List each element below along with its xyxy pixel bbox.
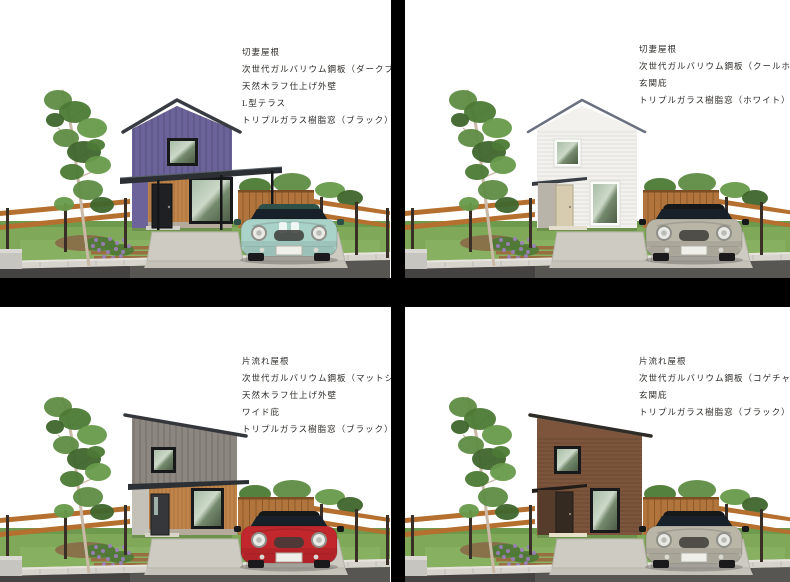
spec-line: 玄関庇 xyxy=(639,75,790,92)
spec-line: ワイド庇 xyxy=(242,404,391,421)
house xyxy=(530,415,651,538)
spec-line: トリプルガラス樹脂窓（ホワイト） xyxy=(639,92,790,109)
house-rendering-bottom-left xyxy=(0,307,390,582)
spec-line: 切妻屋根 xyxy=(639,41,790,58)
house-rendering-bottom-right xyxy=(405,307,790,582)
panel-top-left: 切妻屋根 次世代ガルバリウム鋼板（ダークブルー） 天然木ラフ仕上げ外壁 L型テラ… xyxy=(0,0,391,278)
house-rendering-top-left xyxy=(0,0,390,278)
spec-line: 天然木ラフ仕上げ外壁 xyxy=(242,387,391,404)
spec-line: 天然木ラフ仕上げ外壁 xyxy=(242,78,391,95)
spec-line: 次世代ガルバリウム鋼板（マットシルバー） xyxy=(242,370,391,387)
house-design-comparison-sheet: 切妻屋根 次世代ガルバリウム鋼板（ダークブルー） 天然木ラフ仕上げ外壁 L型テラ… xyxy=(0,0,790,582)
spec-line: 片流れ屋根 xyxy=(242,353,391,370)
spec-line: 片流れ屋根 xyxy=(639,353,790,370)
house xyxy=(528,100,645,231)
spec-line: 玄関庇 xyxy=(639,387,790,404)
spec-line: トリプルガラス樹脂窓（ブラック） xyxy=(242,112,391,129)
spec-line: 次世代ガルバリウム鋼板（コゲチャ） xyxy=(639,370,790,387)
spec-line: トリプルガラス樹脂窓（ブラック） xyxy=(639,404,790,421)
spec-line: 次世代ガルバリウム鋼板（ダークブルー） xyxy=(242,61,391,78)
panel-top-right: 切妻屋根 次世代ガルバリウム鋼板（クールホワイト） 玄関庇 トリプルガラス樹脂窓… xyxy=(405,0,790,278)
panel-bottom-left: 片流れ屋根 次世代ガルバリウム鋼板（マットシルバー） 天然木ラフ仕上げ外壁 ワイ… xyxy=(0,307,391,582)
spec-list: 切妻屋根 次世代ガルバリウム鋼板（ダークブルー） 天然木ラフ仕上げ外壁 L型テラ… xyxy=(242,44,391,129)
spec-line: 次世代ガルバリウム鋼板（クールホワイト） xyxy=(639,58,790,75)
house xyxy=(125,407,249,538)
divider-horizontal xyxy=(0,278,790,307)
spec-line: L型テラス xyxy=(242,95,391,112)
spec-list: 切妻屋根 次世代ガルバリウム鋼板（クールホワイト） 玄関庇 トリプルガラス樹脂窓… xyxy=(639,41,790,126)
spec-line: 切妻屋根 xyxy=(242,44,391,61)
spec-list: 片流れ屋根 次世代ガルバリウム鋼板（コゲチャ） 玄関庇 トリプルガラス樹脂窓（ブ… xyxy=(639,353,790,438)
spec-list: 片流れ屋根 次世代ガルバリウム鋼板（マットシルバー） 天然木ラフ仕上げ外壁 ワイ… xyxy=(242,353,391,438)
spec-line: トリプルガラス樹脂窓（ブラック） xyxy=(242,421,391,438)
spec-line xyxy=(639,109,790,126)
spec-line xyxy=(639,421,790,438)
panel-bottom-right: 片流れ屋根 次世代ガルバリウム鋼板（コゲチャ） 玄関庇 トリプルガラス樹脂窓（ブ… xyxy=(405,307,790,582)
